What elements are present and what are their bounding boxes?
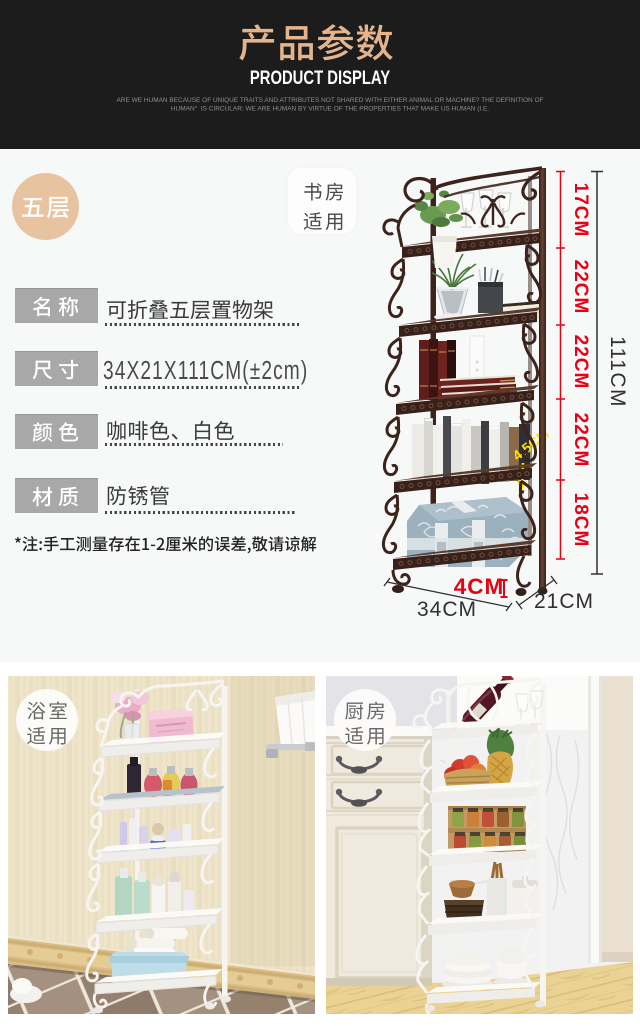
svg-text:17CM: 17CM xyxy=(570,183,591,238)
svg-text:21CM: 21CM xyxy=(534,590,594,613)
svg-text:34CM: 34CM xyxy=(417,598,477,621)
svg-text:18CM: 18CM xyxy=(570,493,591,548)
svg-text:4CM: 4CM xyxy=(454,574,505,599)
svg-text:22CM: 22CM xyxy=(570,335,591,390)
svg-text:22CM: 22CM xyxy=(570,413,591,468)
svg-text:111CM: 111CM xyxy=(606,336,629,408)
svg-text:22CM: 22CM xyxy=(570,260,591,315)
